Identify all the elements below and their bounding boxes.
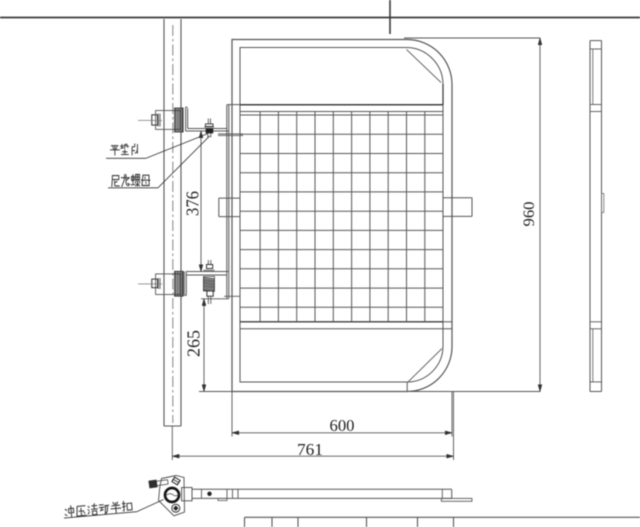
svg-text:960: 960 bbox=[521, 202, 538, 227]
svg-text:761: 761 bbox=[297, 440, 323, 459]
svg-text:600: 600 bbox=[330, 416, 355, 435]
svg-text:376: 376 bbox=[183, 191, 203, 216]
svg-text:265: 265 bbox=[184, 330, 204, 357]
